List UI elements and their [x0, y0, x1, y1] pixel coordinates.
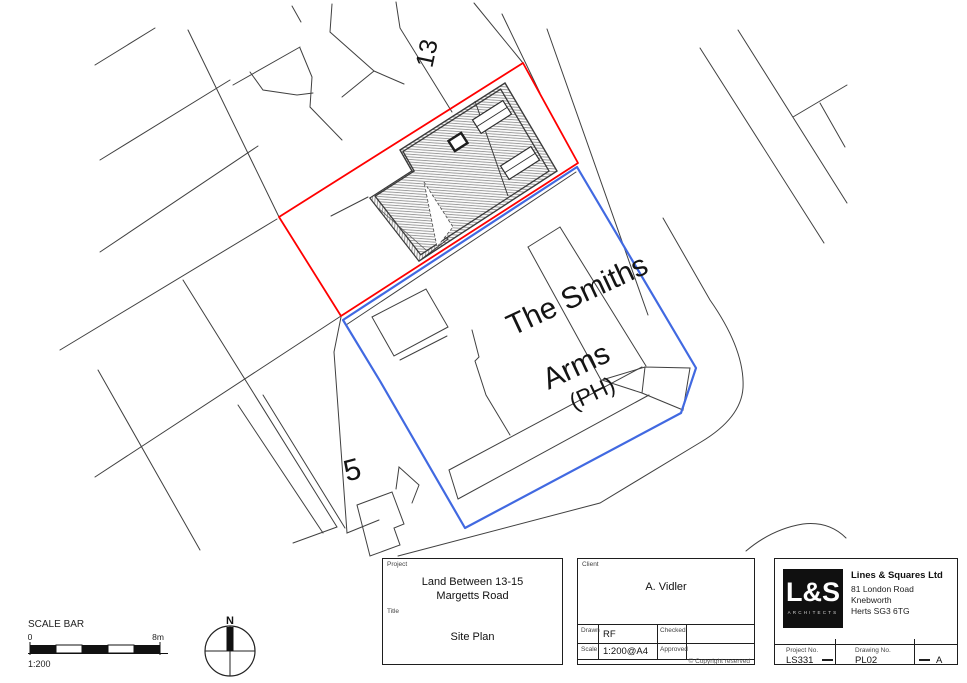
drawn-label: Drawn: [581, 627, 600, 634]
scale-bar-ratio: 1:200: [28, 659, 51, 669]
title-block-client: Client A. Vidler Drawn RF Checked Scale …: [577, 558, 755, 665]
scale-bar-start: 0: [28, 632, 33, 642]
title-label: Title: [387, 608, 399, 615]
scale-bar-title: SCALE BAR: [28, 619, 84, 630]
client-name: A. Vidler: [578, 581, 754, 594]
copyright-note: © Copyright reserved: [688, 658, 750, 665]
title-block-company: L&S ARCHITECTS Lines & Squares Ltd 81 Lo…: [774, 558, 958, 665]
existing-building-13-15: [370, 83, 557, 261]
copyright-text: Copyright reserved: [695, 658, 750, 665]
approved-label: Approved: [660, 646, 688, 653]
site-plan-sheet: { "map": { "labels": { "plot_13": "13", …: [0, 0, 967, 683]
drawing-title: Site Plan: [383, 631, 562, 644]
client-label: Client: [582, 561, 599, 568]
project-name-line1: Land Between 13-15: [383, 576, 562, 589]
divider-dash-1: [822, 659, 833, 661]
company-address-3: Herts SG3 6TG: [851, 606, 910, 616]
north-needle: [227, 627, 234, 651]
scale-bar: SCALE BAR 0 8m 1:200: [28, 619, 168, 669]
drawing-no-value: PL02: [855, 655, 877, 666]
scale-value: 1:200@A4: [603, 646, 648, 657]
label-plot-13: 13: [411, 37, 444, 70]
north-arrow: N: [205, 615, 255, 676]
logo-subtext: ARCHITECTS: [783, 610, 843, 615]
company-name: Lines & Squares Ltd: [851, 570, 943, 581]
drawn-value: RF: [603, 629, 616, 640]
project-no-label: Project No.: [786, 647, 818, 654]
project-no-value: LS331: [786, 655, 813, 666]
drawing-no-label: Drawing No.: [855, 647, 891, 654]
divider-dash-2: [919, 659, 930, 661]
title-block-project: Project Land Between 13-15 Margetts Road…: [382, 558, 563, 665]
north-label: N: [226, 615, 234, 627]
pub-name-line1: The Smiths: [501, 248, 652, 342]
company-address-2: Knebworth: [851, 595, 892, 605]
checked-label: Checked: [660, 627, 686, 634]
scale-label: Scale: [581, 646, 597, 653]
project-label: Project: [387, 561, 407, 568]
scale-bar-end: 8m: [152, 632, 164, 642]
revision-value: A: [936, 655, 942, 666]
project-name-line2: Margetts Road: [383, 590, 562, 603]
company-address-1: 81 London Road: [851, 584, 914, 594]
copyright-icon: ©: [688, 658, 693, 665]
company-logo: L&S ARCHITECTS: [783, 569, 843, 628]
logo-text: L&S: [783, 572, 843, 612]
street-and-plot-lines: [60, 2, 847, 556]
